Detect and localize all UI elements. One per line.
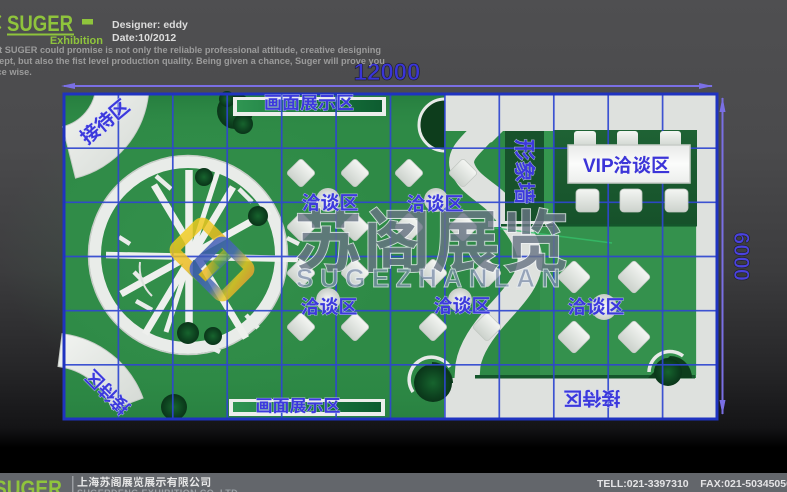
svg-text:6000: 6000 (729, 232, 754, 281)
svg-text:SUGER: SUGER (0, 476, 62, 492)
svg-text:SUGER: SUGER (7, 11, 73, 36)
svg-text:at SUGER could promise is not: at SUGER could promise is not only the r… (0, 45, 381, 55)
svg-text:VIP: VIP (583, 156, 614, 177)
svg-text:SUGEZHANLAN: SUGEZHANLAN (296, 263, 567, 293)
svg-text:cept, but also the fist level: cept, but also the fist level production… (0, 56, 385, 66)
svg-text:Designer: eddy: Designer: eddy (112, 19, 188, 31)
svg-text:Date:10/2012: Date:10/2012 (112, 32, 176, 44)
svg-text:ice wise.: ice wise. (0, 67, 32, 77)
svg-text:SUGERDENG EXHIBITION CO.,LTD: SUGERDENG EXHIBITION CO.,LTD (77, 488, 238, 492)
svg-text:TELL:021-3397310 FAX:021-50: TELL:021-3397310 FAX:021-50345056 (597, 478, 787, 490)
